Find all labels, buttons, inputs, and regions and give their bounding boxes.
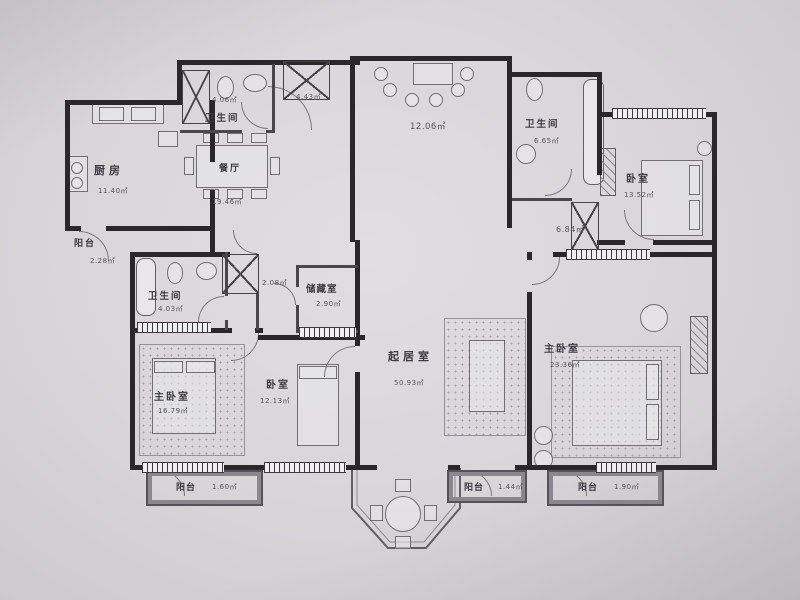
wall-segment: [448, 465, 460, 470]
chair-icon: [395, 536, 411, 549]
chair-icon: [251, 133, 267, 143]
wall-segment: [597, 117, 602, 175]
wall-segment: [653, 240, 717, 245]
wall-segment: [130, 252, 135, 470]
window-band: [612, 108, 706, 119]
burner-icon: [71, 177, 83, 189]
window-band: [137, 322, 211, 333]
door-arc: [241, 102, 268, 129]
round-table-icon: [385, 496, 421, 532]
label-balcony-west-name: 阳台: [74, 236, 96, 249]
label-balcony-sc-area: 1.44㎡: [498, 482, 523, 492]
chair-icon: [534, 426, 553, 445]
window-band: [596, 462, 656, 473]
label-living-name: 起居室: [388, 348, 433, 364]
label-bathroom-west-area: 4.03㎡: [158, 304, 183, 314]
label-kitchen-name: 厨房: [94, 162, 124, 178]
window-band: [566, 249, 650, 260]
wall-segment: [350, 56, 355, 242]
door-arc: [532, 257, 560, 285]
chair-icon: [424, 505, 437, 521]
wall-segment: [597, 72, 602, 117]
label-foyer-area: 4.43㎡: [296, 92, 321, 102]
floor-plan: 厨房 11.40㎡ 阳台 2.28㎡ 4.06㎡ 卫生间 4.43㎡ 餐厅 19…: [0, 0, 800, 600]
wall-segment: [527, 292, 532, 470]
partition-wall: [296, 265, 299, 287]
partition-wall: [225, 320, 228, 330]
label-storage-name: 储藏室: [306, 281, 338, 295]
label-bathroom-north-area: 4.06㎡: [212, 95, 237, 105]
washbasin-icon: [196, 262, 217, 280]
window-band: [142, 462, 224, 473]
door-arc: [545, 169, 572, 196]
label-bedroom-ne-name: 卧室: [626, 170, 650, 185]
chair-icon: [405, 93, 419, 107]
window-band: [264, 462, 346, 473]
wall-segment: [130, 252, 230, 257]
wall-segment: [355, 372, 360, 468]
label-dining-area: 19.46㎡: [212, 197, 242, 207]
label-bedroom-ne-area: 13.52㎡: [624, 190, 654, 200]
pillow-icon: [186, 361, 215, 373]
chair-icon: [383, 83, 397, 97]
label-bedroom-south-area: 12.13㎡: [260, 396, 290, 406]
label-balcony-se-area: 1.90㎡: [614, 482, 639, 492]
label-balcony-se-name: 阳台: [578, 480, 598, 493]
label-living-area: 50.93㎡: [394, 378, 424, 388]
partition-wall: [266, 130, 275, 133]
door-arc: [324, 346, 355, 377]
partition-wall: [512, 198, 572, 201]
label-master-west-name: 主卧室: [154, 388, 190, 403]
burner-icon: [71, 162, 83, 174]
kitchen-sink-icon: [131, 107, 156, 121]
kitchen-sink-icon: [99, 107, 124, 121]
wall-segment: [65, 226, 81, 231]
wall-segment: [507, 56, 512, 228]
nightstand-icon: [697, 141, 712, 156]
wall-segment: [65, 100, 182, 105]
wall-segment: [512, 72, 602, 77]
door-arc: [198, 296, 224, 322]
label-bathroom-ne-name: 卫生间: [525, 116, 560, 130]
pillow-icon: [689, 200, 700, 230]
label-balcony-sw-area: 1.60㎡: [212, 482, 237, 492]
toilet-icon: [167, 262, 183, 284]
chair-icon: [227, 133, 243, 143]
label-balcony-sc-name: 阳台: [464, 480, 484, 493]
chair-icon: [370, 505, 383, 521]
label-bathroom-north-name: 卫生间: [205, 110, 240, 124]
label-balcony-west-area: 2.28㎡: [90, 256, 115, 266]
label-bathroom-ne-area: 6.65㎡: [534, 136, 559, 146]
wall-segment: [65, 100, 70, 231]
pillow-icon: [646, 404, 659, 440]
shaft-x-icon: [222, 254, 259, 294]
partition-wall: [296, 265, 358, 268]
label-kitchen-area: 11.40㎡: [98, 186, 128, 196]
label-master-east-area: 23.36㎡: [550, 360, 580, 370]
label-master-west-area: 16.79㎡: [158, 406, 188, 416]
sofa-icon: [469, 340, 505, 412]
chair-icon: [395, 479, 411, 492]
armchair-icon: [640, 304, 668, 332]
washbasin-icon: [516, 144, 536, 164]
chair-icon: [184, 157, 194, 175]
wall-segment: [350, 56, 512, 61]
label-family-north-area: 12.06㎡: [410, 120, 446, 132]
wall-segment: [355, 465, 377, 470]
bathtub-icon: [136, 258, 156, 316]
pillow-icon: [646, 364, 659, 400]
wardrobe-icon: [690, 316, 708, 374]
wall-segment: [177, 60, 360, 65]
pillow-icon: [154, 361, 183, 373]
partition-wall: [272, 64, 275, 133]
label-bedroom-south-name: 卧室: [266, 376, 290, 391]
label-corridor-area: 2.08㎡: [262, 278, 287, 288]
partition-wall: [180, 130, 242, 133]
balcony-rail: [146, 470, 263, 506]
chair-icon: [374, 67, 388, 81]
wall-segment: [106, 226, 215, 231]
wall-segment: [597, 240, 625, 245]
table-icon: [413, 63, 453, 85]
wall-segment: [210, 226, 215, 256]
fridge-icon: [158, 131, 178, 147]
label-bathroom-west-name: 卫生间: [148, 288, 183, 302]
label-dining-name: 餐厅: [219, 161, 241, 174]
chair-icon: [460, 67, 474, 81]
pillow-icon: [689, 165, 700, 195]
door-arc: [231, 333, 259, 361]
wall-segment: [527, 252, 532, 260]
door-arc: [233, 230, 257, 254]
chair-icon: [451, 83, 465, 97]
washbasin-icon: [243, 74, 267, 92]
label-master-east-name: 主卧室: [544, 340, 580, 355]
wall-segment: [712, 112, 717, 468]
toilet-icon: [526, 78, 543, 101]
door-arc: [624, 210, 654, 240]
balcony-rail: [547, 470, 664, 506]
window-band: [299, 327, 356, 338]
wardrobe-icon: [600, 148, 616, 196]
partition-wall: [256, 294, 259, 330]
label-hallway-area: 6.84㎡: [556, 224, 584, 235]
label-storage-area: 2.90㎡: [316, 299, 341, 309]
chair-icon: [270, 157, 280, 175]
label-balcony-sw-name: 阳台: [176, 480, 196, 493]
chair-icon: [251, 189, 267, 199]
chair-icon: [429, 93, 443, 107]
